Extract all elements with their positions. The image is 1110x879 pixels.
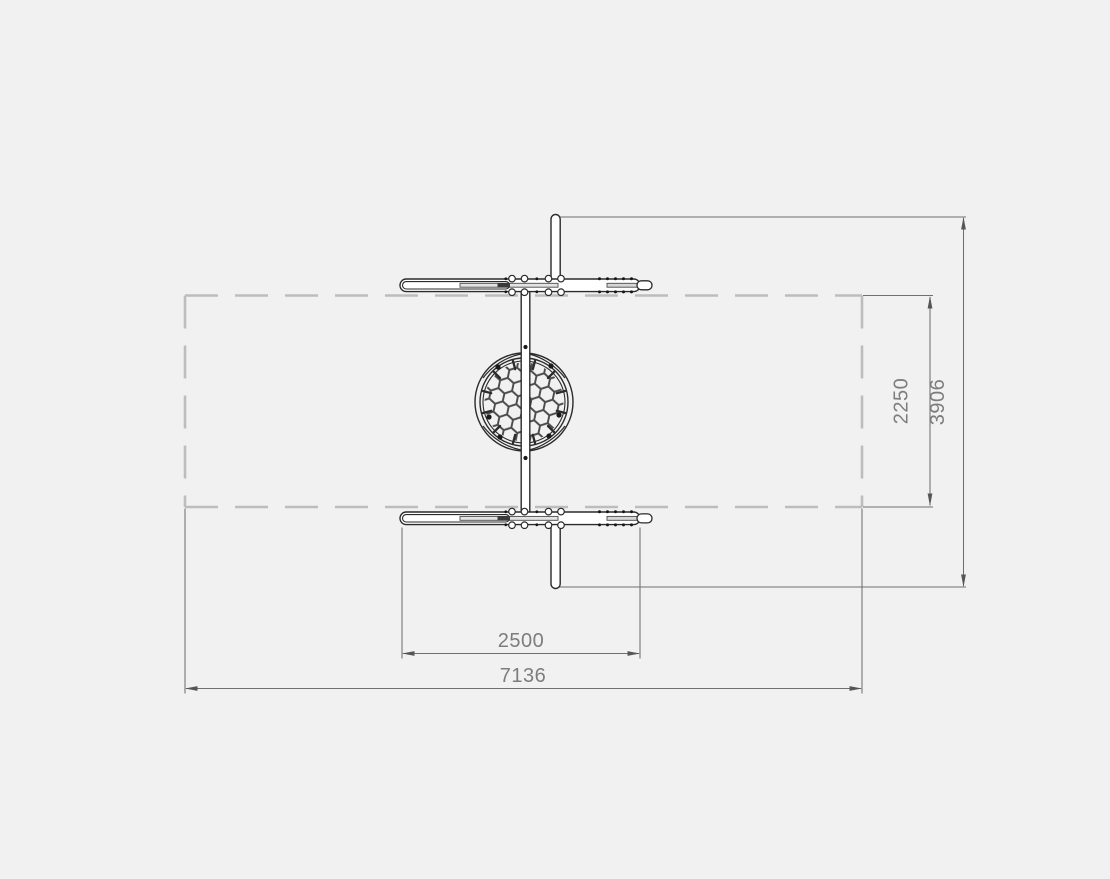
bolt-icon (548, 363, 553, 368)
bolt-icon (486, 414, 491, 419)
beam-right-rod (607, 283, 637, 287)
beam-right-rod (607, 516, 637, 520)
pole-bolt-bottom (523, 456, 527, 460)
beam-coupler (498, 283, 511, 287)
center-pole (521, 290, 530, 514)
dimension-label-3906: 3906 (927, 379, 949, 426)
center-pole-tube (521, 290, 530, 514)
dimension-label-7136: 7136 (500, 665, 547, 687)
bolt-icon (556, 412, 561, 417)
pole-bolt-top (523, 345, 527, 349)
support-post-bottom (551, 520, 560, 589)
support-post-top (551, 215, 560, 285)
bolt-icon (546, 433, 551, 438)
bolt-icon (497, 434, 502, 439)
beam-end-cap (637, 514, 652, 523)
dimension-label-2500: 2500 (498, 630, 545, 652)
swing-top-view-drawing: 2250 3906 2500 7136 (0, 0, 1110, 879)
beam-end-cap (637, 281, 652, 290)
beam-coupler (498, 516, 511, 520)
dimension-label-2250: 2250 (891, 378, 913, 425)
technical-drawing-stage: 2250 3906 2500 7136 (0, 0, 1110, 879)
bolt-icon (495, 364, 500, 369)
